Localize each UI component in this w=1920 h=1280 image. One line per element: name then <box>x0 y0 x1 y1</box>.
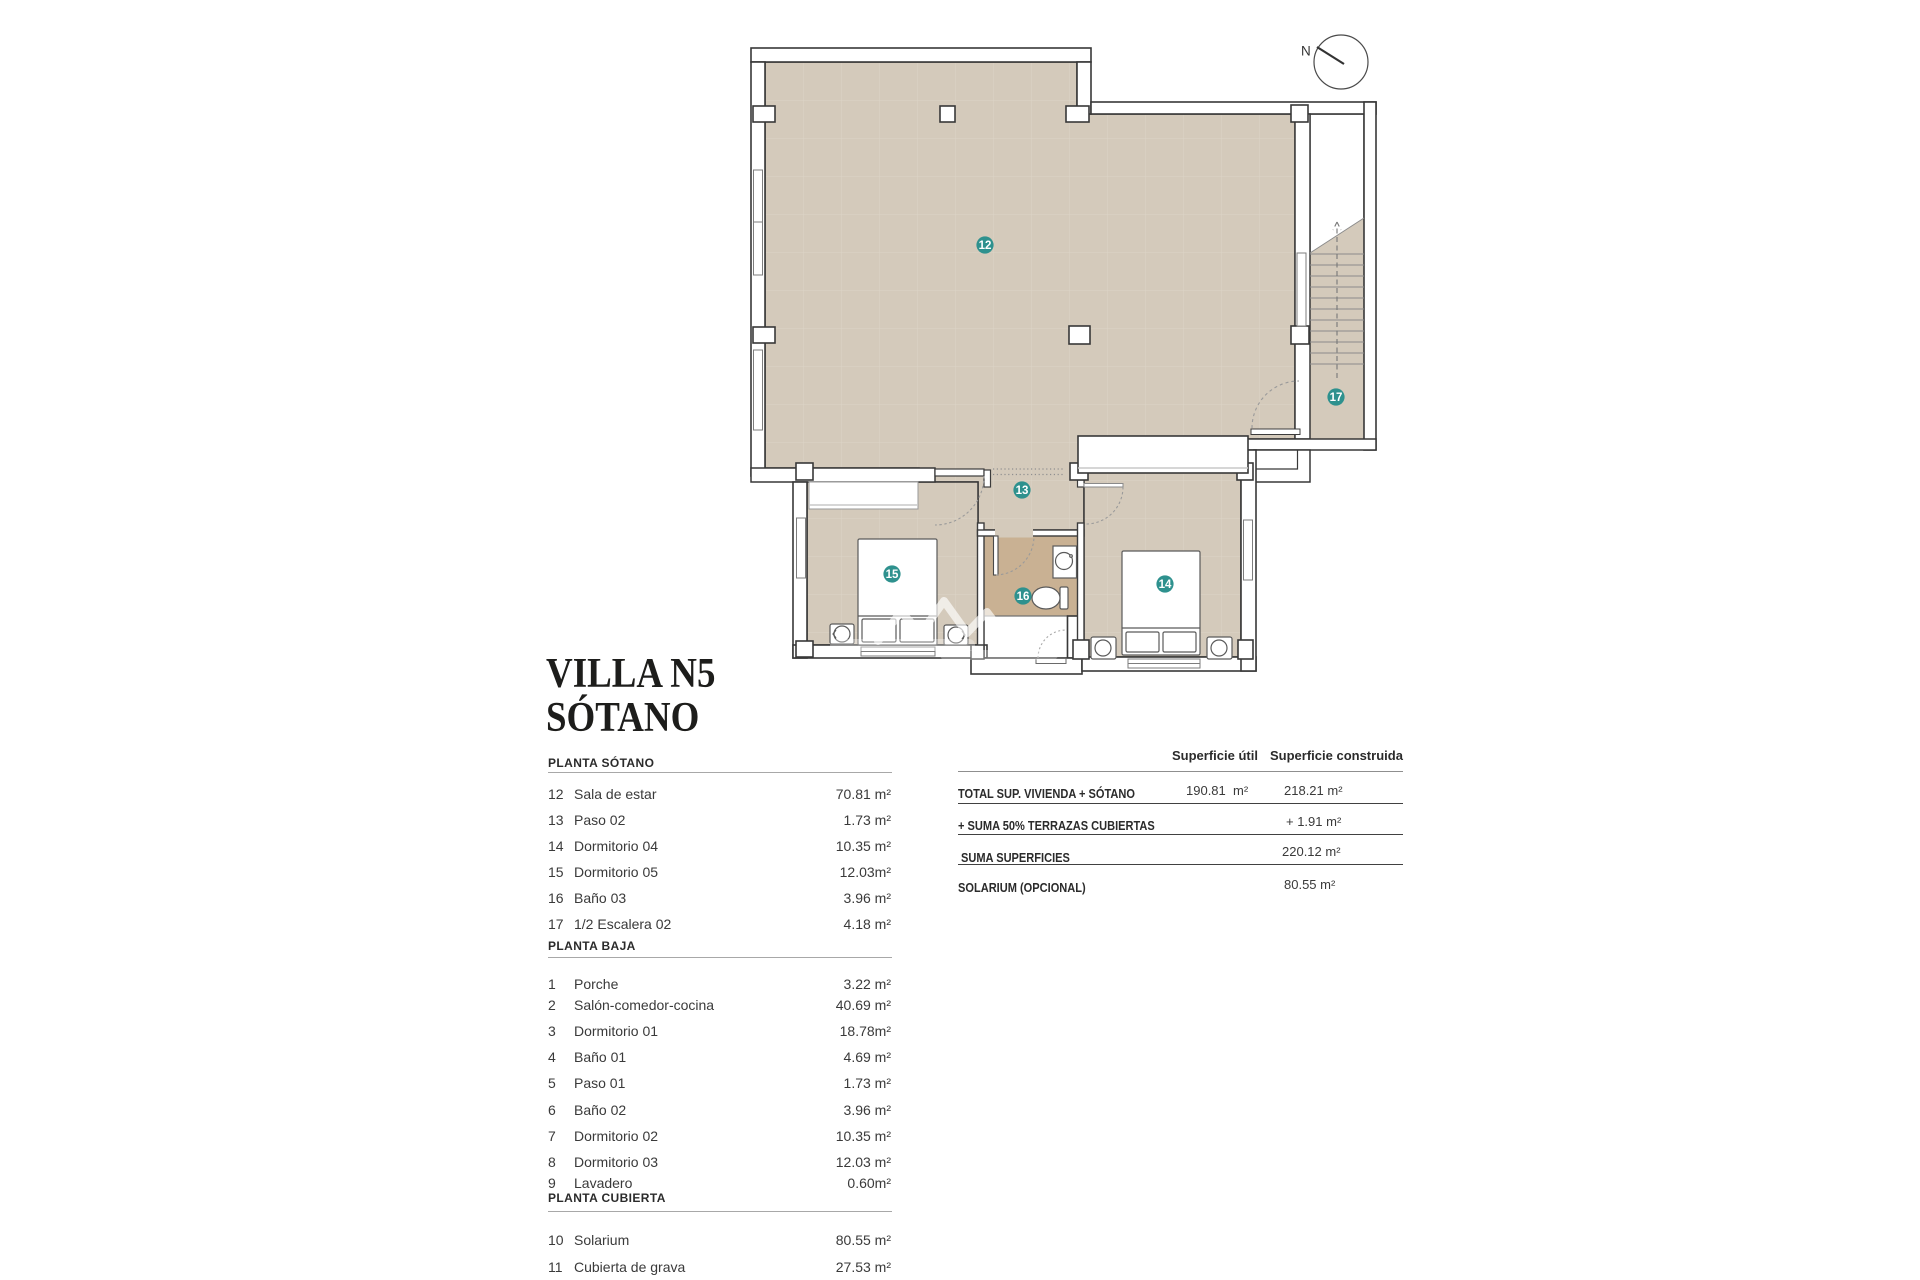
svg-text:15: 15 <box>886 569 899 581</box>
svg-text:17: 17 <box>1330 392 1343 404</box>
svg-text:16: 16 <box>1017 591 1030 603</box>
svg-text:13: 13 <box>1016 485 1029 497</box>
svg-text:12: 12 <box>979 240 992 252</box>
svg-text:N: N <box>1301 44 1311 59</box>
svg-text:14: 14 <box>1159 579 1172 591</box>
